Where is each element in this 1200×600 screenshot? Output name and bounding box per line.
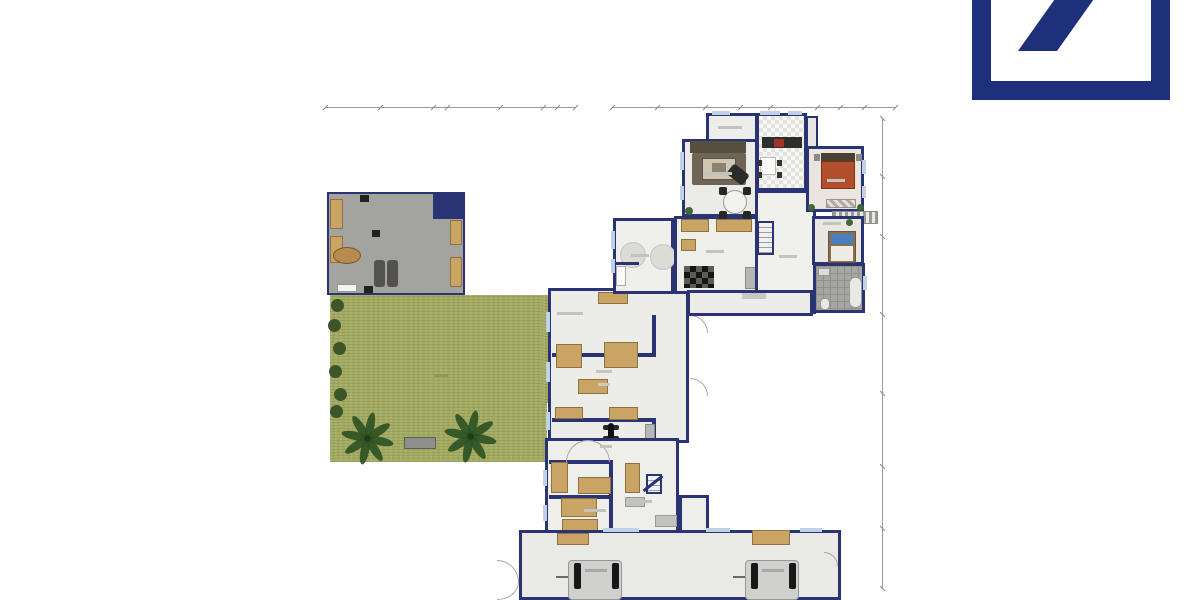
- room-label-smudge: [596, 370, 612, 373]
- dim-tick: [555, 105, 561, 111]
- chair: [719, 211, 727, 219]
- window: [862, 160, 866, 174]
- dim-tick: [768, 105, 774, 111]
- floor-plan: [0, 0, 1200, 600]
- cabinet: [655, 515, 677, 527]
- terrace-dining-table: [333, 247, 361, 264]
- car-wheel-bar: [574, 563, 581, 589]
- workbench: [557, 533, 589, 545]
- car-wheel-bar: [751, 563, 758, 589]
- sink: [818, 268, 830, 276]
- dim-tick: [323, 105, 329, 111]
- room-label-smudge: [638, 500, 652, 503]
- room-label-smudge: [598, 383, 610, 386]
- plant: [685, 207, 693, 215]
- dim-tick: [573, 105, 579, 111]
- dim-tick: [610, 105, 616, 111]
- plant: [846, 219, 853, 226]
- hall-desk-2: [556, 344, 582, 368]
- bed-sheet: [831, 246, 853, 261]
- car-wheel-bar: [789, 563, 796, 589]
- window: [546, 362, 550, 382]
- dim-tick: [880, 312, 886, 318]
- wing-desk-2: [578, 477, 611, 494]
- staircase: [757, 221, 774, 255]
- dim-tick: [703, 105, 709, 111]
- dim-tick: [880, 116, 886, 122]
- deutsche-bank-logo: [972, 0, 1170, 100]
- door-arc: [497, 582, 519, 600]
- door-arc: [497, 560, 519, 582]
- dim-tick: [880, 174, 886, 180]
- garden-bush-3: [333, 342, 346, 355]
- dim-tick: [655, 105, 661, 111]
- toilet: [820, 298, 830, 310]
- garden-bush-1: [331, 299, 344, 312]
- dim-tick: [880, 464, 886, 470]
- dim-line-top-left: [325, 107, 575, 108]
- fixture: [616, 266, 626, 286]
- window: [680, 186, 684, 200]
- window: [862, 186, 866, 198]
- hall-desk-3: [604, 342, 638, 368]
- window: [800, 528, 822, 532]
- dim-tick: [431, 105, 437, 111]
- garden-palm-1: [341, 412, 394, 465]
- window: [788, 111, 802, 115]
- car-wheel-bar: [612, 563, 619, 589]
- car-windshield: [762, 569, 784, 572]
- page-canvas: [0, 0, 1200, 600]
- room-label-smudge: [718, 126, 742, 129]
- room-label-smudge: [557, 312, 583, 315]
- bed-pillow-blue: [831, 234, 853, 244]
- hall-desk-5: [555, 407, 583, 419]
- office-desk-3: [681, 239, 696, 251]
- dim-tick: [838, 105, 844, 111]
- garden-bush-2: [328, 319, 341, 332]
- terrace-lounger-1: [374, 260, 385, 287]
- terrace-roof-block: [433, 193, 464, 219]
- kitchen-room: [756, 113, 807, 191]
- dim-tick: [880, 391, 886, 397]
- garden-bench: [404, 437, 436, 449]
- terrace-planter-3: [364, 286, 373, 293]
- doormat: [742, 293, 766, 299]
- window: [706, 528, 730, 532]
- hall-desk-6: [609, 407, 638, 420]
- terrace-bench-white: [337, 284, 357, 292]
- partial-wall: [652, 315, 656, 357]
- window: [760, 111, 780, 115]
- garden-label-smudge: [434, 374, 448, 377]
- dim-tick: [880, 234, 886, 240]
- kitchen-stove: [774, 139, 784, 147]
- plant: [808, 204, 815, 211]
- dim-tick: [445, 105, 451, 111]
- dim-tick: [541, 105, 547, 111]
- room-label-smudge: [779, 255, 797, 258]
- massage-table-round-2: [650, 244, 676, 270]
- office-desk-2: [716, 219, 752, 232]
- dim-tick: [738, 105, 744, 111]
- garden-bush-5: [334, 388, 347, 401]
- bed-headboard: [821, 153, 855, 161]
- bathtub: [849, 277, 862, 308]
- dim-tick: [862, 105, 868, 111]
- kitchen-chair: [777, 172, 782, 178]
- terrace-lounger-2: [387, 260, 398, 287]
- car-windshield: [585, 569, 607, 572]
- plant: [857, 204, 864, 211]
- window: [611, 259, 615, 273]
- dim-line-right: [882, 118, 883, 588]
- window: [712, 111, 730, 115]
- dim-tick: [880, 526, 886, 532]
- window: [611, 231, 615, 249]
- terrace-planter-1: [360, 195, 369, 202]
- room-label-smudge: [706, 250, 724, 253]
- terrace-bench-right-1: [450, 220, 462, 245]
- nightstand: [814, 154, 820, 161]
- dim-tick: [893, 105, 899, 111]
- kitchen-table: [760, 157, 776, 175]
- room-label-smudge: [631, 254, 649, 257]
- chair: [719, 187, 727, 195]
- dim-line-top-right: [612, 107, 895, 108]
- window: [543, 470, 547, 486]
- chair: [743, 211, 751, 219]
- office-desk-1: [681, 219, 709, 232]
- bed-red: [821, 161, 855, 189]
- terrace-planter-2: [372, 230, 380, 237]
- chair: [743, 187, 751, 195]
- wing-desk-3: [625, 463, 640, 493]
- wardrobe: [826, 199, 856, 208]
- terrace-bench-right-2: [450, 257, 462, 287]
- dim-tick: [880, 586, 886, 592]
- partial-wall: [613, 262, 639, 265]
- window: [603, 528, 639, 532]
- dim-tick: [498, 105, 504, 111]
- garden-bush-4: [329, 365, 342, 378]
- dim-tick: [815, 105, 821, 111]
- room-label-smudge: [827, 179, 845, 182]
- window: [863, 276, 867, 290]
- room-label-smudge: [584, 509, 606, 512]
- window: [546, 412, 550, 430]
- kitchen-chair: [777, 160, 782, 166]
- kitchen-counter-block: [684, 266, 714, 288]
- door-arc: [690, 378, 708, 396]
- corridor-vertical: [806, 116, 818, 148]
- room-label-smudge: [600, 445, 612, 448]
- wing-desk-4: [561, 498, 597, 517]
- terrace-bench-left-1: [330, 199, 343, 229]
- room-label-smudge: [706, 172, 732, 175]
- workbench: [752, 530, 790, 545]
- garden-palm-2: [444, 410, 497, 463]
- window: [543, 505, 547, 521]
- office-wing-subroom: [679, 495, 709, 533]
- car-antenna: [556, 576, 568, 578]
- car-antenna: [733, 576, 745, 578]
- door-arc: [690, 315, 708, 333]
- wing-desk-1: [551, 462, 568, 493]
- room-label-smudge: [823, 222, 841, 225]
- dim-tick: [378, 105, 384, 111]
- hall-desk-4: [578, 379, 608, 394]
- window: [546, 312, 550, 332]
- living-sofa: [690, 141, 746, 153]
- window: [680, 152, 684, 170]
